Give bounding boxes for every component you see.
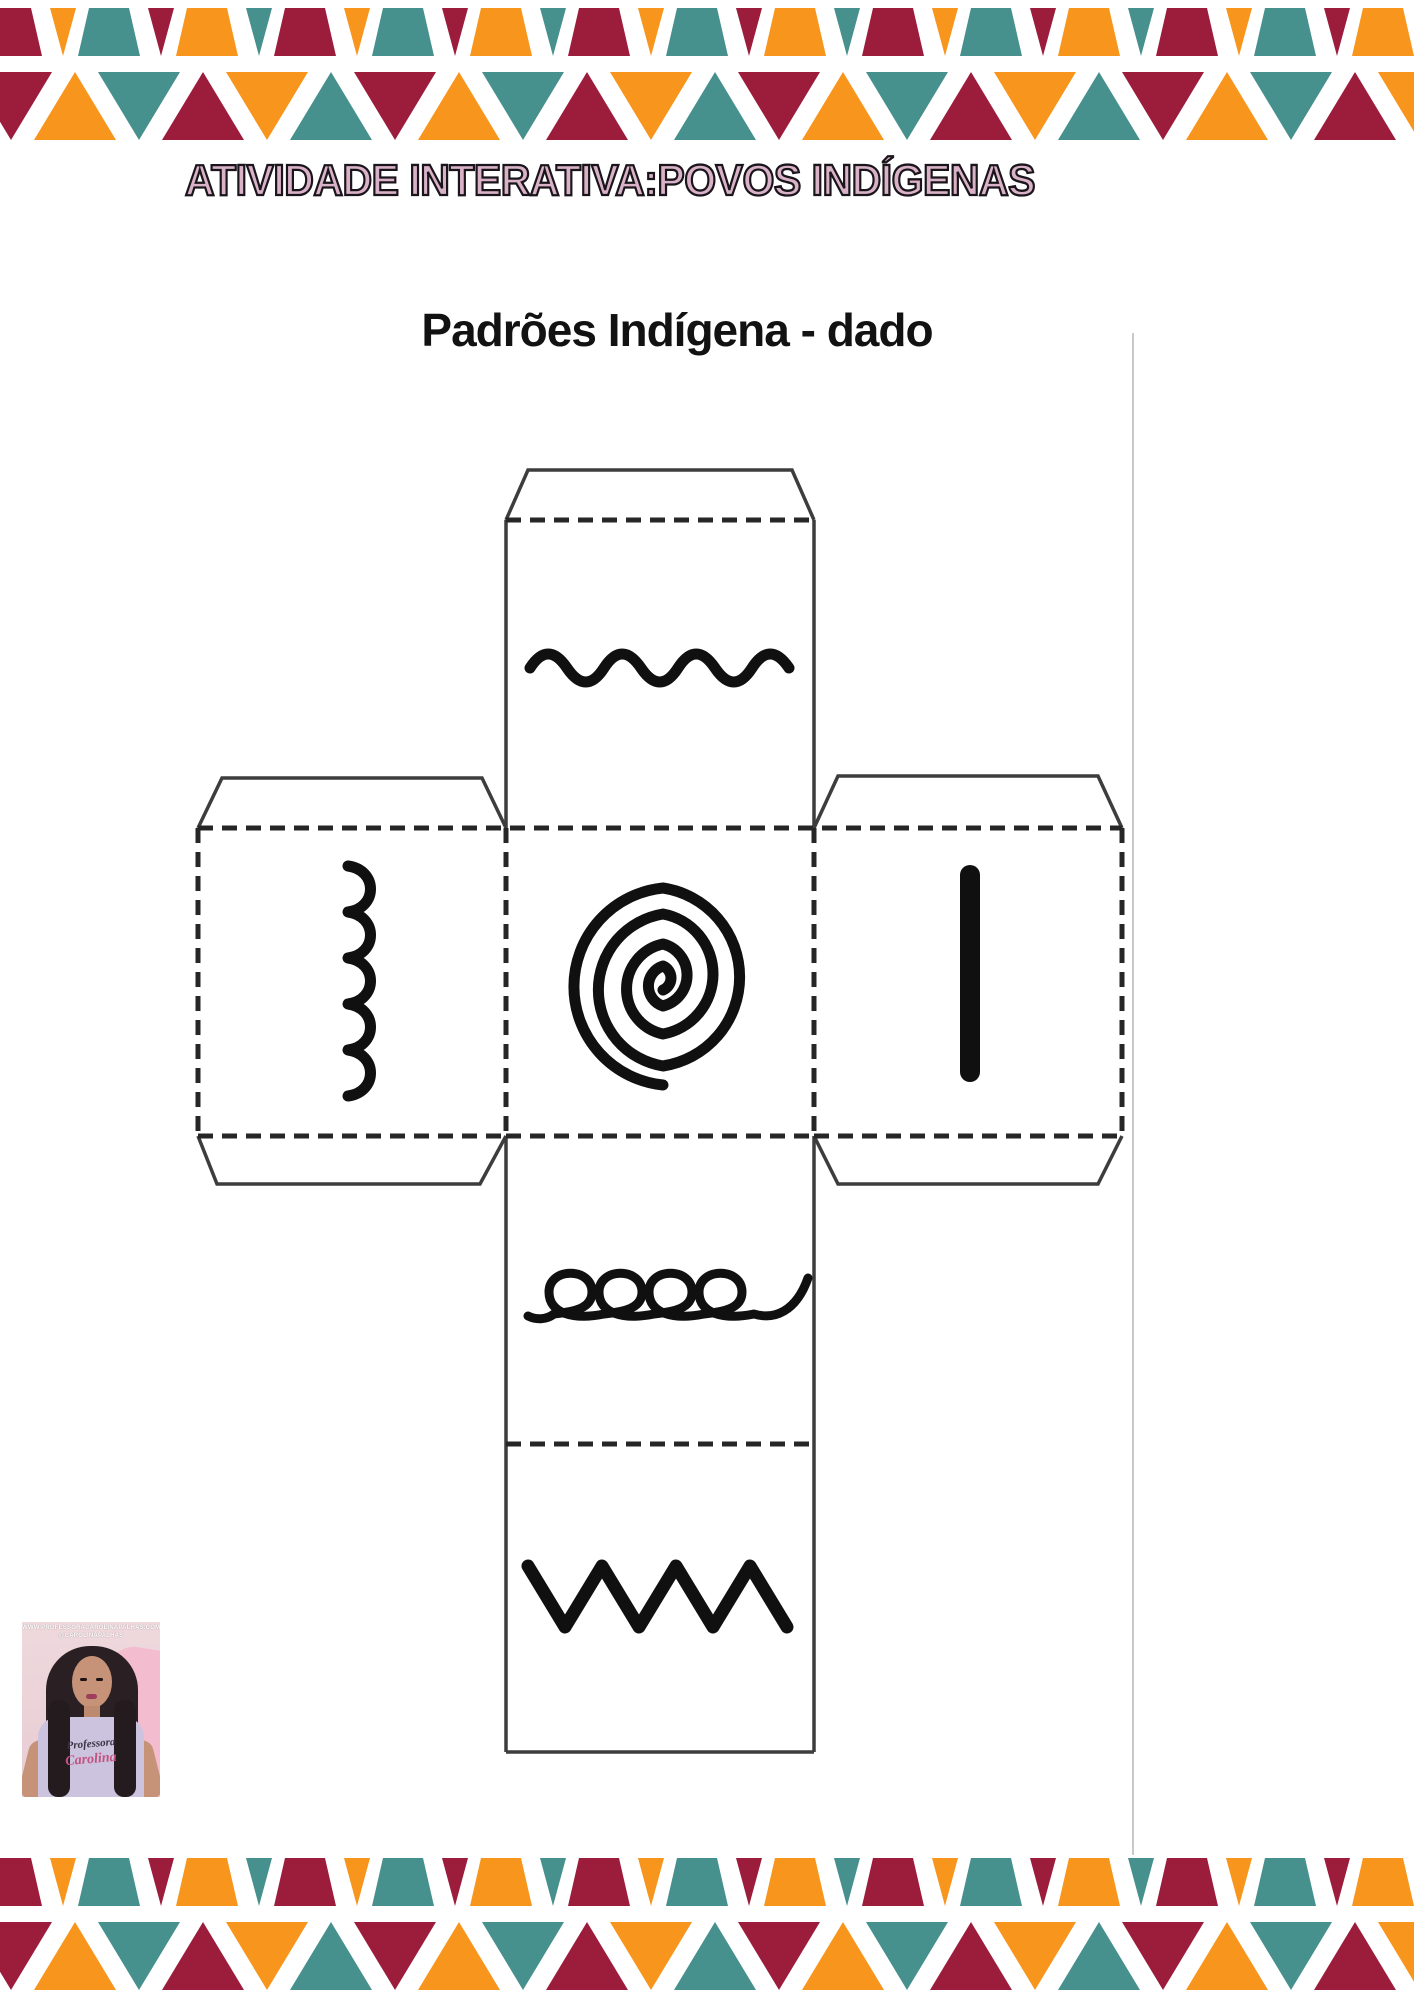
triangle-shape	[148, 8, 174, 56]
triangle-shape	[344, 1858, 370, 1906]
triangle-shape	[1254, 8, 1316, 56]
fold-lines	[198, 520, 1122, 1444]
triangle-shape	[1058, 1858, 1120, 1906]
triangle-shape	[470, 1858, 532, 1906]
dice-cube-net	[150, 440, 1150, 1770]
triangle-shape	[674, 72, 756, 140]
triangle-shape	[994, 1922, 1076, 1990]
triangle-shape	[50, 1858, 76, 1906]
triangle-shape	[862, 8, 924, 56]
triangle-shape	[834, 1858, 860, 1906]
triangle-shape	[930, 1922, 1012, 1990]
triangle-shape	[418, 72, 500, 140]
triangle-shape	[1030, 1858, 1056, 1906]
triangle-shape	[274, 8, 336, 56]
triangle-shape	[546, 72, 628, 140]
triangle-shape	[568, 8, 630, 56]
triangle-shape	[34, 1922, 116, 1990]
vertical-scallop-pattern-icon	[348, 866, 371, 1096]
left-eye	[80, 1678, 87, 1681]
triangle-shape	[162, 1922, 244, 1990]
triangle-shape	[372, 8, 434, 56]
triangle-shape	[1058, 72, 1140, 140]
triangle-shape	[1352, 1858, 1414, 1906]
zigzag-pattern-icon	[528, 1566, 787, 1627]
triangle-shape	[736, 1858, 762, 1906]
triangle-shape	[802, 1922, 884, 1990]
triangle-shape	[162, 72, 244, 140]
triangle-shape	[98, 1922, 180, 1990]
triangle-shape	[274, 1858, 336, 1906]
triangle-shape	[1226, 8, 1252, 56]
triangle-shape	[1352, 8, 1414, 56]
triangle-shape	[442, 1858, 468, 1906]
triangle-shape	[290, 72, 372, 140]
triangle-shape	[1156, 8, 1218, 56]
cut-lines	[198, 470, 1122, 1752]
triangle-shape	[418, 1922, 500, 1990]
die-face-patterns	[348, 654, 970, 1627]
worksheet-subtitle: Padrões Indígena - dado	[0, 303, 1354, 357]
triangle-shape	[764, 8, 826, 56]
teacher-credit-photo: WWW.PROFESSORACAROLINAPALHAS.COM @CAROLI…	[22, 1622, 160, 1797]
triangle-shape	[666, 8, 728, 56]
triangle-shape	[290, 1922, 372, 1990]
triangle-shape	[354, 1922, 436, 1990]
triangle-shape	[1122, 72, 1204, 140]
page-title: ATIVIDADE INTERATIVA:POVOS INDÍGENAS	[0, 156, 1220, 206]
triangle-shape	[738, 72, 820, 140]
triangle-shape	[1128, 1858, 1154, 1906]
triangle-shape	[1324, 1858, 1350, 1906]
triangle-shape	[1324, 8, 1350, 56]
triangle-shape	[1058, 8, 1120, 56]
triangle-shape	[1254, 1858, 1316, 1906]
triangle-shape	[246, 8, 272, 56]
triangle-shape	[0, 8, 42, 56]
triangle-shape	[34, 72, 116, 140]
triangle-shape	[482, 1922, 564, 1990]
spiral-pattern-icon	[574, 888, 740, 1085]
triangle-shape	[226, 1922, 308, 1990]
triangle-shape	[540, 1858, 566, 1906]
triangle-shape	[1058, 1922, 1140, 1990]
triangle-shape	[736, 8, 762, 56]
triangle-shape	[1186, 1922, 1268, 1990]
bottom-triangle-border	[0, 1850, 1414, 2000]
triangle-shape	[834, 8, 860, 56]
triangle-shape	[568, 1858, 630, 1906]
left-top-glue-flap	[198, 778, 506, 828]
triangle-shape	[176, 1858, 238, 1906]
triangle-shape	[610, 72, 692, 140]
triangle-shape	[930, 72, 1012, 140]
triangle-shape	[802, 72, 884, 140]
triangle-shape	[866, 72, 948, 140]
triangle-shape	[470, 8, 532, 56]
lips	[86, 1694, 97, 1699]
triangle-shape	[148, 1858, 174, 1906]
triangle-shape	[344, 8, 370, 56]
face	[72, 1656, 112, 1708]
triangle-shape	[1250, 1922, 1332, 1990]
triangle-shape	[866, 1922, 948, 1990]
triangle-shape	[50, 8, 76, 56]
triangle-shape	[1128, 8, 1154, 56]
credit-website-text: WWW.PROFESSORACAROLINAPALHAS.COM	[22, 1625, 160, 1631]
right-bottom-glue-flap	[814, 1136, 1122, 1184]
triangle-shape	[1226, 1858, 1252, 1906]
triangle-shape	[764, 1858, 826, 1906]
horizontal-wave-pattern-icon	[530, 654, 789, 682]
triangle-shape	[666, 1858, 728, 1906]
top-triangle-border	[0, 0, 1414, 150]
credit-handle-text: @CAROLINAPALHAS	[22, 1633, 160, 1639]
right-top-glue-flap	[814, 776, 1122, 828]
triangle-shape	[1250, 72, 1332, 140]
top-glue-flap	[506, 470, 814, 520]
triangle-shape	[960, 8, 1022, 56]
triangle-shape	[482, 72, 564, 140]
triangle-shape	[738, 1922, 820, 1990]
triangle-shape	[1314, 72, 1396, 140]
triangle-shape	[442, 8, 468, 56]
worksheet-page: ATIVIDADE INTERATIVA:POVOS INDÍGENAS Pad…	[0, 0, 1414, 2000]
triangle-shape	[246, 1858, 272, 1906]
triangle-shape	[540, 8, 566, 56]
triangle-shape	[638, 1858, 664, 1906]
triangle-shape	[372, 1858, 434, 1906]
triangle-shape	[78, 1858, 140, 1906]
triangle-shape	[1186, 72, 1268, 140]
triangle-shape	[674, 1922, 756, 1990]
triangle-shape	[1314, 1922, 1396, 1990]
triangle-shape	[610, 1922, 692, 1990]
triangle-shape	[1030, 8, 1056, 56]
triangle-shape	[546, 1922, 628, 1990]
triangle-shape	[1122, 1922, 1204, 1990]
triangle-shape	[994, 72, 1076, 140]
triangle-shape	[932, 8, 958, 56]
triangle-shape	[862, 1858, 924, 1906]
triangle-shape	[226, 72, 308, 140]
triangle-shape	[1156, 1858, 1218, 1906]
triangle-shape	[0, 1858, 42, 1906]
triangle-shape	[638, 8, 664, 56]
loops-pattern-icon	[528, 1273, 808, 1319]
triangle-shape	[98, 72, 180, 140]
triangle-shape	[354, 72, 436, 140]
triangle-shape	[176, 8, 238, 56]
left-bottom-glue-flap	[198, 1136, 506, 1184]
triangle-shape	[78, 8, 140, 56]
triangle-shape	[960, 1858, 1022, 1906]
triangle-shape	[932, 1858, 958, 1906]
right-eye	[96, 1678, 103, 1681]
